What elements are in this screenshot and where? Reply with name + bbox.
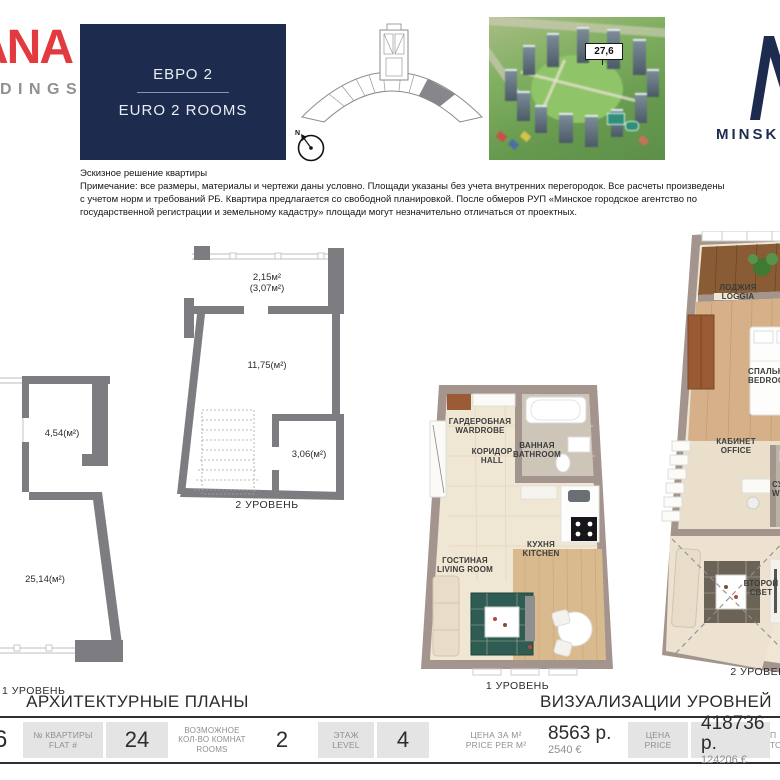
unit-type-ru: ЕВРО 2 [153,66,213,83]
area-label-room2: 3,06(м²) [292,449,327,460]
balcony-window [192,254,338,259]
aerial-building [517,91,530,121]
table-label-level: ЭТАЖ LEVEL [318,722,374,758]
minsk-world-logo-text: MINSK W [716,126,780,143]
viz1-kitchen-label: КУХНЯ KITCHEN [501,540,581,558]
area-label-room1: 4,54(м²) [45,428,80,439]
table-cell-house-value-partial: 6 [0,726,7,754]
compass-north-label: N [295,130,300,137]
sofa-icon [433,576,459,656]
aerial-photo-layer [489,17,665,160]
balcony-tick [473,669,501,675]
pillow [754,331,773,343]
aerial-sports-court [625,121,639,131]
elevator-core [380,24,408,80]
viz1-living-label: ГОСТИНАЯ LIVING ROOM [425,556,505,574]
stove-icon [571,517,597,541]
wall [672,529,780,536]
brand-logo-subtext: DINGS [0,82,83,98]
table-value-rooms: 2 [258,722,306,758]
aerial-building [535,105,547,133]
table-value-level: 4 [377,722,429,758]
disclaimer-title: Эскизное решение квартиры [80,167,724,180]
disclaimer-line: Примечание: все размеры, материалы и чер… [80,180,724,193]
apartment-data-table: 6 № КВАРТИРЫ FLAT # 24 ВОЗМОЖНОЕ КОЛ-ВО … [0,716,780,764]
aerial-building [505,69,517,101]
arch-plan-level2: 2,15м² (3,07м²) 11,75(м²) 3,06(м²) [172,242,357,514]
arch-plan-level1: 4,54(м²) 25,14(м²) [0,358,146,698]
loggia-railing [702,231,780,241]
minsk-world-logo-mark [748,30,780,122]
viz1-wardrobe-label: ГАРДЕРОБНАЯ WARDROBE [435,417,525,435]
sofa-icon [671,548,700,627]
walls [22,376,123,662]
aerial-photo: 27,6 [489,17,665,160]
wardrobe-cabinet [447,394,471,410]
window-tick [46,645,52,651]
aerial-building [633,39,646,75]
kitchen-cabinet [521,486,557,499]
coffee-table-icon [485,607,519,637]
window-tick [14,645,20,651]
section-title-visualizations: ВИЗУАЛИЗАЦИИ УРОВНЕЙ [540,692,765,712]
table-label-price: ЦЕНА PRICE [628,722,688,758]
column [525,596,535,641]
viz2-loggia-label: ЛОДЖИЯ LOGGIA [698,283,778,301]
table-label-flat: № КВАРТИРЫ FLAT # [23,722,103,758]
tower-height-marker: 27,6 [585,43,623,60]
aerial-building [523,45,535,75]
viz2-bedroom-label: СПАЛЬНЯ BEDROOM [748,367,780,385]
area-label-main: 11,75(м²) [247,360,286,371]
table-value-price-per-m2: 8563 р. 2540 € [540,722,628,758]
plan2-caption: 2 УРОВЕНЬ [212,499,322,511]
apartment-datasheet: ANA DINGS ЕВРО 2 EURO 2 ROOMS [0,0,780,780]
building-floor-overview [292,22,492,132]
viz2-secondlight-label: ВТОРОЙ СВЕТ [721,579,780,597]
compass-icon: N [292,126,332,166]
area-label-balcony: 2,15м² [253,272,281,283]
table-label-price-per-m2: ЦЕНА ЗА М² PRICE PER M² [458,722,534,758]
wall [521,476,599,483]
aerial-sports-court [607,113,625,125]
divider [137,92,229,93]
aerial-building [559,113,573,143]
table-label-rooms: ВОЗМОЖНОЕ КОЛ-ВО КОМНАТ ROOMS [168,722,256,758]
area-label-room2: 25,14(м²) [25,574,65,585]
table-value-price: 418736 р. 124206 € [691,722,777,758]
aerial-roof [638,135,649,146]
balcony-tick [511,669,539,675]
disclaimer-line: с учетом норм и требований РБ. Квартира … [80,193,724,206]
viz1-caption: 1 УРОВЕНЬ [455,680,580,692]
unit-type-box: ЕВРО 2 EURO 2 ROOMS [80,24,286,160]
aerial-building [547,33,559,67]
aerial-building [635,93,647,123]
table-value-flat: 24 [106,722,168,758]
wall [515,394,522,483]
office-chair-icon [747,497,759,509]
unit-type-en: EURO 2 ROOMS [119,102,248,119]
window-lines [0,378,76,653]
viz2-wc-label: СУ WC [772,480,780,498]
balcony-tick [549,669,577,675]
closet-row [473,394,515,406]
viz2-office-label: КАБИНЕТ OFFICE [696,437,776,455]
table-label-total-partial: П ТО [770,722,780,758]
aerial-roof [508,139,519,150]
section-title-plans: АРХИТЕКТУРНЫЕ ПЛАНЫ [15,692,260,712]
kitchen-sink-icon [568,490,590,502]
disclaimer-line: государственной регистрации и земельному… [80,206,724,219]
aerial-building [647,69,659,97]
aerial-building [585,115,598,147]
viz1-bathroom-label: ВАННАЯ BATHROOM [497,441,577,459]
viz2-caption: 2 УРОВЕНЬ [712,666,780,678]
aerial-roof [520,131,531,142]
stairs [194,410,262,494]
area-label-balcony-full: (3,07м²) [250,283,285,294]
disclaimer-block: Эскизное решение квартиры Примечание: вс… [80,167,724,219]
brand-logo-text: ANA [0,24,72,72]
aerial-roof [496,131,507,142]
